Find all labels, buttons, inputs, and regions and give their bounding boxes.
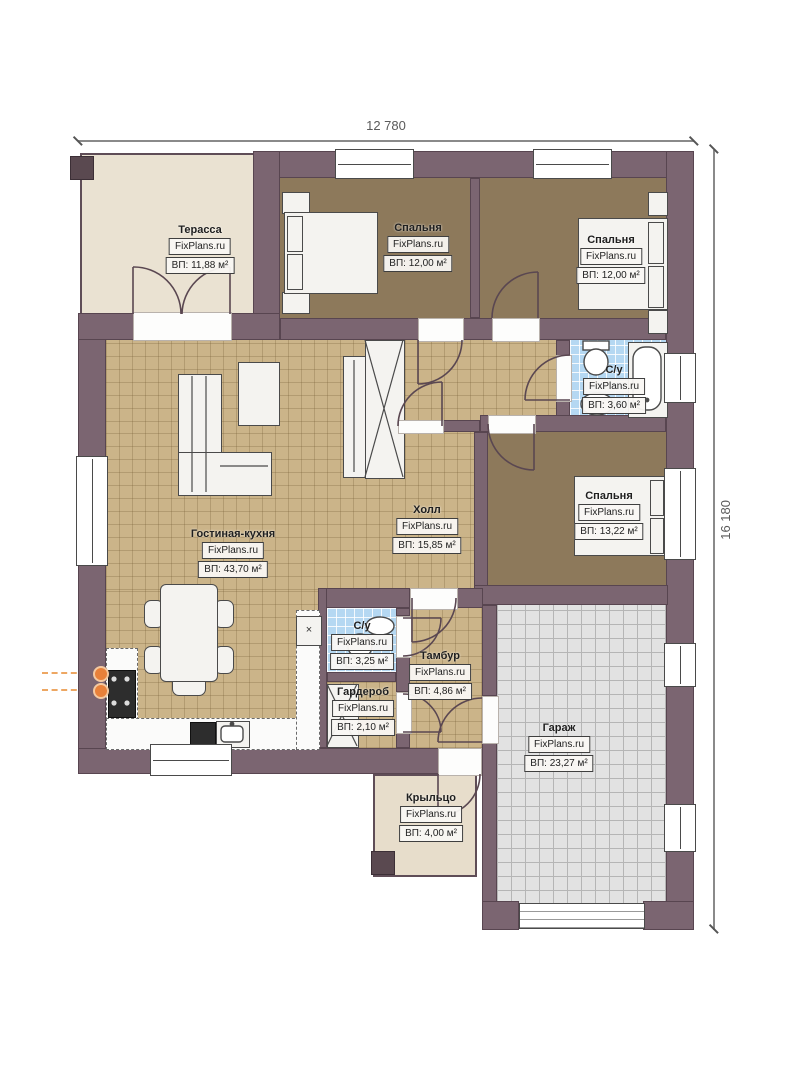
utility-connection	[93, 683, 109, 699]
room-label-bathroom1: С/у FixPlans.ru ВП: 3,60 м²	[582, 364, 646, 414]
nightstand	[648, 192, 668, 216]
room-label-porch: Крыльцо FixPlans.ru ВП: 4,00 м²	[399, 792, 463, 842]
sofa-seat	[178, 452, 272, 496]
watermark: FixPlans.ru	[528, 736, 590, 753]
wall-garage-left-a	[482, 605, 497, 696]
pillow	[287, 254, 303, 290]
door-opening-vestibule	[410, 588, 458, 610]
nightstand	[648, 310, 668, 334]
room-area: ВП: 2,10 м²	[331, 719, 395, 736]
room-area: ВП: 3,25 м²	[330, 653, 394, 670]
coffee-table	[238, 362, 280, 426]
room-area: ВП: 3,60 м²	[582, 397, 646, 414]
room-label-bedroom1: Спальня FixPlans.ru ВП: 12,00 м²	[383, 222, 452, 272]
wall-hall-vestibule-b	[456, 588, 483, 608]
wall-top	[253, 151, 694, 178]
door-opening-bathroom1	[556, 355, 572, 402]
pillow	[648, 266, 664, 308]
door-opening-terrace	[133, 312, 232, 341]
wall-bathroom2-right-c	[396, 732, 410, 748]
dimension-line-right	[713, 150, 715, 930]
room-area: ВП: 4,00 м²	[399, 825, 463, 842]
nightstand	[282, 192, 310, 214]
window-living	[76, 456, 108, 566]
boiler-unit: ×	[296, 616, 322, 646]
watermark: FixPlans.ru	[583, 378, 645, 395]
room-label-wardrobe: Гардероб FixPlans.ru ВП: 2,10 м²	[331, 686, 395, 736]
window-bathroom1	[664, 353, 696, 403]
wall-bathroom2-right-a	[396, 608, 410, 616]
wall-garage-top	[474, 585, 668, 605]
window-bedroom2	[533, 149, 612, 179]
watermark: FixPlans.ru	[332, 700, 394, 717]
room-name: Холл	[392, 504, 461, 516]
watermark: FixPlans.ru	[169, 238, 231, 255]
wall-bottom-main	[78, 748, 482, 774]
garage-gate	[519, 903, 645, 929]
room-name: Гардероб	[331, 686, 395, 698]
room-label-living-kitchen: Гостиная-кухня FixPlans.ru ВП: 43,70 м²	[191, 528, 275, 578]
room-name: Гараж	[524, 722, 593, 734]
room-label-bathroom2: С/у FixPlans.ru ВП: 3,25 м²	[330, 620, 394, 670]
watermark: FixPlans.ru	[578, 504, 640, 521]
wall-bedrooms-bottom	[280, 318, 666, 340]
pillow	[287, 216, 303, 252]
watermark: FixPlans.ru	[396, 518, 458, 535]
window-bedroom3	[664, 468, 696, 560]
room-name: Спальня	[383, 222, 452, 234]
terrace-post	[70, 156, 94, 180]
window-bedroom1	[335, 149, 414, 179]
room-name: Терасса	[166, 224, 235, 236]
watermark: FixPlans.ru	[400, 806, 462, 823]
nightstand	[282, 292, 310, 314]
wall-bathroom2-wardrobe	[327, 672, 396, 682]
dining-table	[160, 584, 218, 682]
room-area: ВП: 11,88 м²	[166, 257, 235, 274]
wall-bedroom-divider	[470, 178, 480, 318]
wall-garage-left-b	[482, 742, 497, 905]
room-name: Спальня	[576, 234, 645, 246]
room-name: Спальня	[574, 490, 643, 502]
window-garage-1	[664, 643, 696, 687]
room-label-garage: Гараж FixPlans.ru ВП: 23,27 м²	[524, 722, 593, 772]
watermark: FixPlans.ru	[387, 236, 449, 253]
porch-post	[371, 851, 395, 875]
room-label-vestibule: Тамбур FixPlans.ru ВП: 4,86 м²	[408, 650, 472, 700]
wall-garage-bottom-b	[643, 901, 694, 930]
door-opening-bedroom2	[492, 318, 540, 342]
wall-hall-vestibule-a	[318, 588, 410, 608]
hall-floor	[106, 340, 556, 422]
room-label-bedroom2: Спальня FixPlans.ru ВП: 12,00 м²	[576, 234, 645, 284]
utility-connection	[93, 666, 109, 682]
wall-corridor-top	[442, 420, 480, 432]
room-area: ВП: 13,22 м²	[574, 523, 643, 540]
wall-bedroom3-left	[474, 432, 488, 588]
room-label-terrace: Терасса FixPlans.ru ВП: 11,88 м²	[166, 224, 235, 274]
dimension-height-label: 16 180	[718, 500, 733, 540]
room-name: С/у	[330, 620, 394, 632]
room-label-hall: Холл FixPlans.ru ВП: 15,85 м²	[392, 504, 461, 554]
watermark: FixPlans.ru	[409, 664, 471, 681]
door-opening-bedroom1	[418, 318, 464, 342]
door-opening-bedroom3	[488, 415, 536, 434]
dimension-line-top	[78, 140, 694, 142]
room-area: ВП: 43,70 м²	[198, 561, 267, 578]
window-kitchen	[150, 744, 232, 776]
watermark: FixPlans.ru	[580, 248, 642, 265]
room-label-bedroom3: Спальня FixPlans.ru ВП: 13,22 м²	[574, 490, 643, 540]
watermark: FixPlans.ru	[202, 542, 264, 559]
room-name: Гостиная-кухня	[191, 528, 275, 540]
door-opening-entry	[438, 748, 482, 776]
watermark: FixPlans.ru	[331, 634, 393, 651]
door-opening-garage	[482, 696, 499, 744]
room-area: ВП: 15,85 м²	[392, 537, 461, 554]
door-opening-corridor	[398, 420, 444, 434]
pillow	[648, 222, 664, 264]
room-name: С/у	[582, 364, 646, 376]
room-area: ВП: 12,00 м²	[576, 267, 645, 284]
room-name: Тамбур	[408, 650, 472, 662]
hall-wardrobe-x	[365, 340, 405, 479]
dimension-width-label: 12 780	[336, 118, 436, 133]
room-area: ВП: 4,86 м²	[408, 683, 472, 700]
room-area: ВП: 12,00 м²	[383, 255, 452, 272]
stove	[108, 670, 136, 718]
wall-garage-bottom-a	[482, 901, 519, 930]
pillow	[650, 518, 664, 554]
room-area: ВП: 23,27 м²	[524, 755, 593, 772]
wall-terrace-right	[253, 151, 280, 340]
floor-plan-canvas: 12 780 16 180	[0, 0, 792, 1080]
room-name: Крыльцо	[399, 792, 463, 804]
window-garage-2	[664, 804, 696, 852]
hall-shelf	[343, 356, 367, 478]
pillow	[650, 480, 664, 516]
